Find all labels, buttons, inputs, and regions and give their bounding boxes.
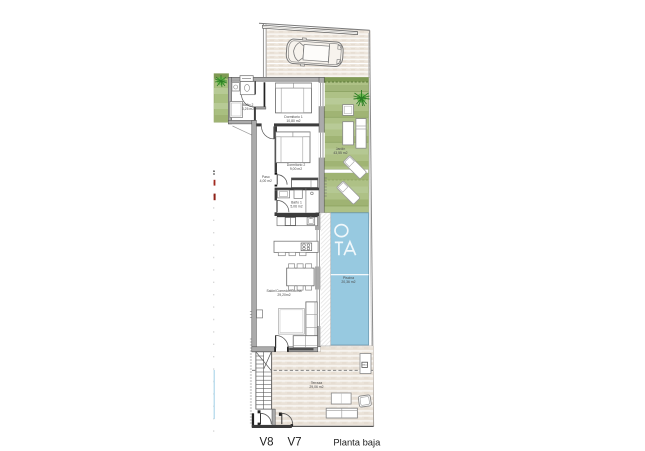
svg-text:4,00 m2: 4,00 m2 — [260, 179, 272, 183]
svg-text:20,36 m2: 20,36 m2 — [341, 280, 355, 284]
svg-text:29,20m2: 29,20m2 — [277, 293, 290, 297]
svg-text:43,55 m2: 43,55 m2 — [333, 151, 347, 155]
svg-text:V8: V8 — [260, 437, 274, 449]
svg-text:BBQ: BBQ — [362, 365, 367, 367]
svg-text:9,00 m2: 9,00 m2 — [290, 167, 302, 171]
svg-text:Planta baja: Planta baja — [333, 436, 381, 447]
svg-text:3,25 m2: 3,25 m2 — [242, 107, 254, 111]
svg-text:V7: V7 — [288, 437, 302, 449]
svg-text:29,06 m2: 29,06 m2 — [309, 385, 323, 389]
svg-text:10,80 m2: 10,80 m2 — [286, 119, 300, 123]
svg-text:5,06 m2: 5,06 m2 — [290, 205, 302, 209]
